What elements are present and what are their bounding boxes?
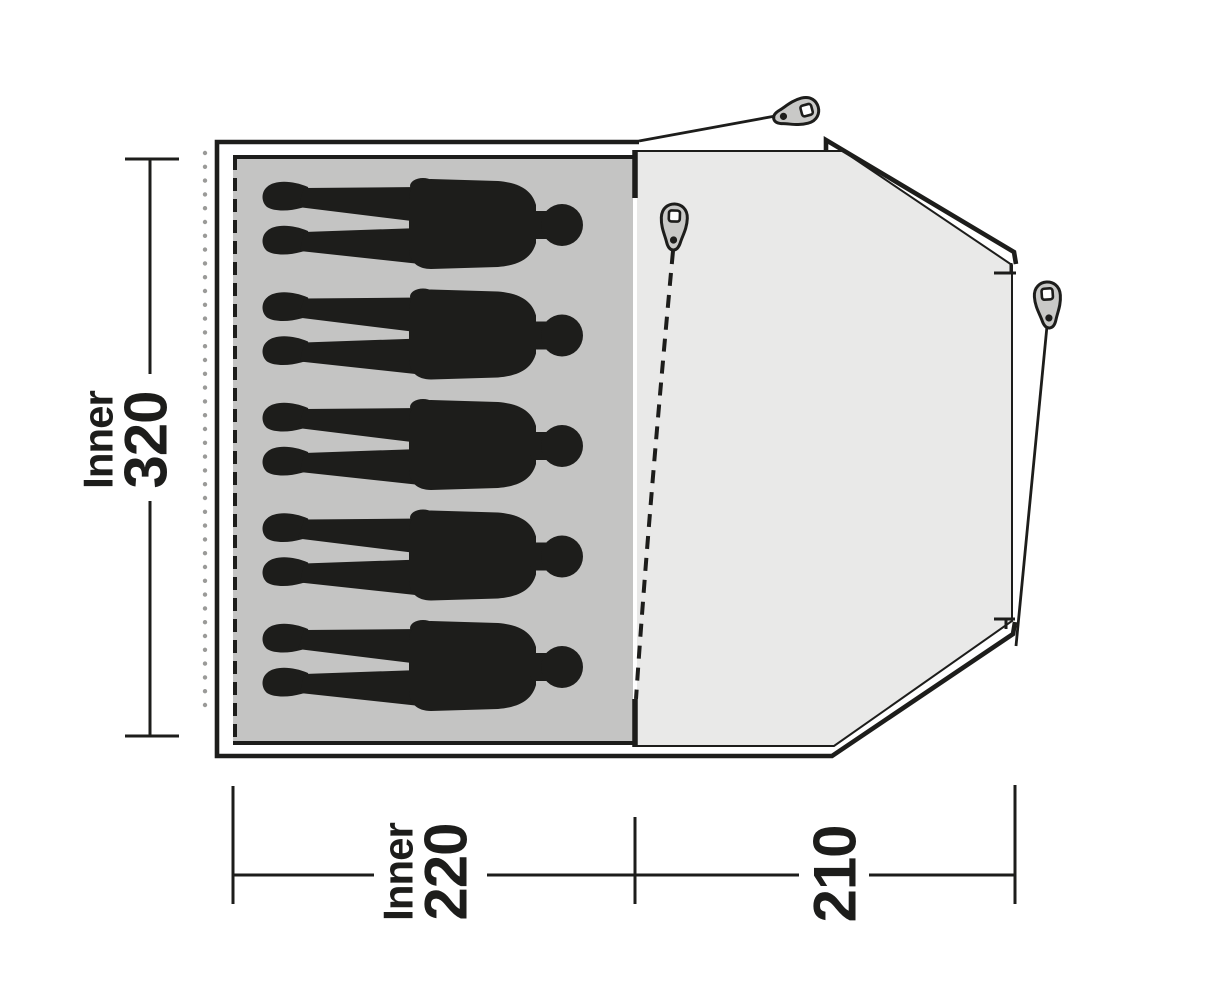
guy-line-top [639, 115, 781, 141]
tent-floorplan-diagram: Inner 320 Inner 220 210 [0, 0, 1230, 1005]
dimension-label-inner-depth: Inner 220 [378, 823, 473, 921]
tent-peg-icon [770, 94, 821, 131]
dimension-value: 220 [418, 823, 473, 921]
dimension-value: 320 [118, 391, 173, 489]
floorplan-drawing [0, 0, 1230, 1005]
dimension-label-inner-width: Inner 320 [78, 391, 173, 489]
guy-line-right [1016, 326, 1047, 646]
porch-area [637, 151, 1012, 746]
dimension-line-bottom [233, 785, 1015, 904]
tent-peg-icon [1033, 281, 1062, 329]
dimension-value: 210 [807, 825, 862, 922]
dimension-label-porch-depth: 210 [807, 825, 862, 922]
